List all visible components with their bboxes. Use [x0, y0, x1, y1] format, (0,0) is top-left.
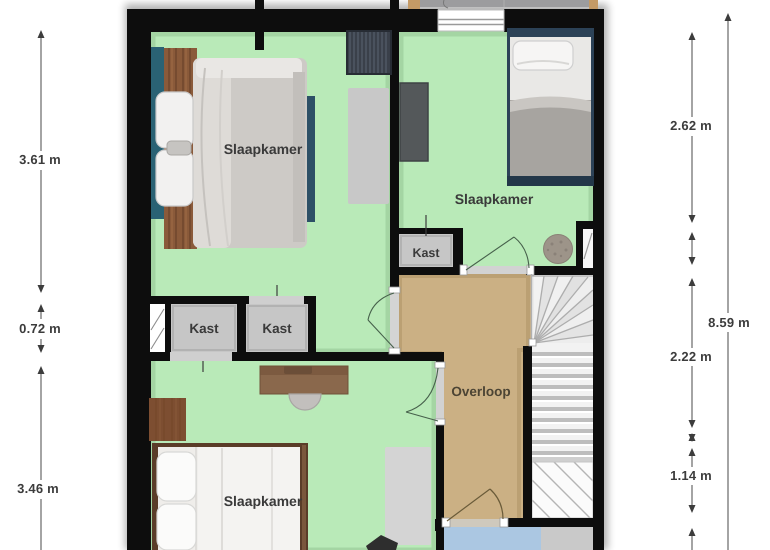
- svg-text:3.61 m: 3.61 m: [19, 152, 61, 167]
- svg-text:Slaapkamer: Slaapkamer: [455, 191, 534, 207]
- svg-text:1.14 m: 1.14 m: [670, 468, 712, 483]
- svg-text:8.59 m: 8.59 m: [708, 315, 750, 330]
- svg-text:Kast: Kast: [189, 321, 219, 336]
- svg-text:Slaapkamer: Slaapkamer: [224, 141, 303, 157]
- svg-text:Kast: Kast: [412, 246, 440, 260]
- svg-text:Kast: Kast: [262, 321, 292, 336]
- svg-text:Overloop: Overloop: [451, 384, 510, 399]
- svg-text:Slaapkamer: Slaapkamer: [224, 493, 303, 509]
- svg-text:2.62 m: 2.62 m: [670, 118, 712, 133]
- svg-text:2.22 m: 2.22 m: [670, 349, 712, 364]
- svg-text:0.72 m: 0.72 m: [19, 321, 61, 336]
- svg-text:3.46 m: 3.46 m: [17, 481, 59, 496]
